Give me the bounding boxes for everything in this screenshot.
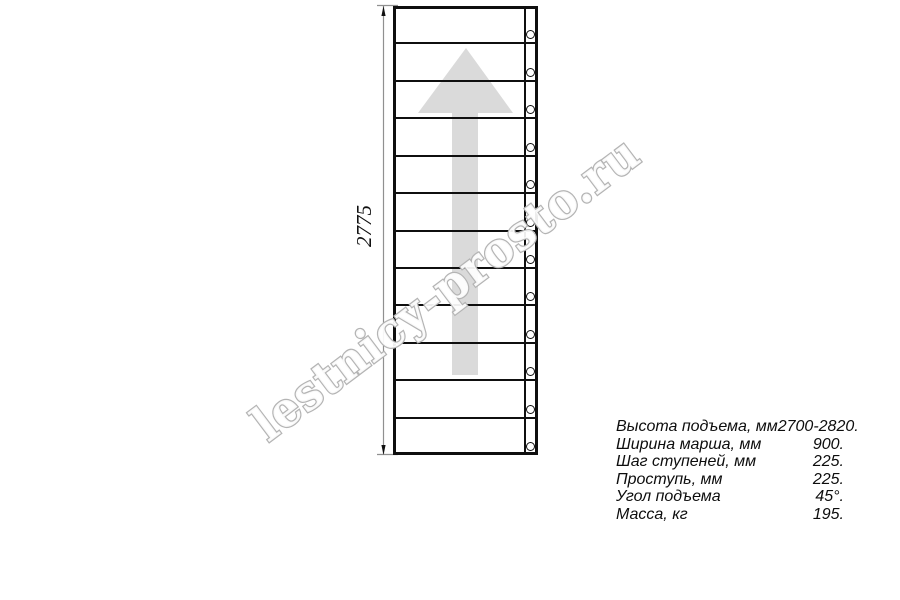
spec-value: 2700-2820. bbox=[778, 418, 859, 436]
screw-hole-icon bbox=[526, 405, 535, 414]
screw-hole-icon bbox=[526, 105, 535, 114]
step-line bbox=[396, 80, 535, 82]
spec-label: Масса, кг bbox=[616, 506, 688, 524]
spec-row: Высота подъема, мм2700-2820. bbox=[616, 418, 844, 436]
spec-row: Ширина марша, мм900. bbox=[616, 436, 844, 454]
spec-row: Проступь, мм225. bbox=[616, 471, 844, 489]
screw-hole-icon bbox=[526, 143, 535, 152]
screw-hole-icon bbox=[526, 30, 535, 39]
dimension-label: 2775 bbox=[352, 186, 376, 266]
spec-row: Масса, кг195. bbox=[616, 506, 844, 524]
spec-label: Шаг ступеней, мм bbox=[616, 453, 756, 471]
screw-hole-icon bbox=[526, 442, 535, 451]
spec-value: 900. bbox=[813, 436, 844, 454]
step-line bbox=[396, 155, 535, 157]
spec-value: 225. bbox=[813, 471, 844, 489]
spec-value: 195. bbox=[813, 506, 844, 524]
screw-hole-icon bbox=[526, 367, 535, 376]
spec-row: Шаг ступеней, мм225. bbox=[616, 453, 844, 471]
step-line bbox=[396, 304, 535, 306]
screw-hole-icon bbox=[526, 330, 535, 339]
step-line bbox=[396, 117, 535, 119]
step-line bbox=[396, 342, 535, 344]
step-line bbox=[396, 230, 535, 232]
spec-label: Угол подъема bbox=[616, 488, 721, 506]
stringer-line bbox=[524, 9, 526, 452]
spec-table: Высота подъема, мм2700-2820.Ширина марша… bbox=[616, 418, 844, 524]
screw-hole-icon bbox=[526, 180, 535, 189]
stair-drawing-canvas: 2775 lestnicy-prosto.ru Высота подъема, … bbox=[0, 0, 900, 600]
spec-value: 45°. bbox=[815, 488, 844, 506]
spec-row: Угол подъема45°. bbox=[616, 488, 844, 506]
staircase-plan bbox=[393, 6, 538, 455]
step-line bbox=[396, 42, 535, 44]
spec-label: Ширина марша, мм bbox=[616, 436, 761, 454]
step-line bbox=[396, 192, 535, 194]
spec-label: Высота подъема, мм bbox=[616, 418, 778, 436]
step-line bbox=[396, 267, 535, 269]
step-line bbox=[396, 417, 535, 419]
spec-value: 225. bbox=[813, 453, 844, 471]
step-line bbox=[396, 379, 535, 381]
screw-hole-icon bbox=[526, 255, 535, 264]
screw-hole-icon bbox=[526, 68, 535, 77]
screw-hole-icon bbox=[526, 218, 535, 227]
screw-hole-icon bbox=[526, 292, 535, 301]
spec-label: Проступь, мм bbox=[616, 471, 722, 489]
